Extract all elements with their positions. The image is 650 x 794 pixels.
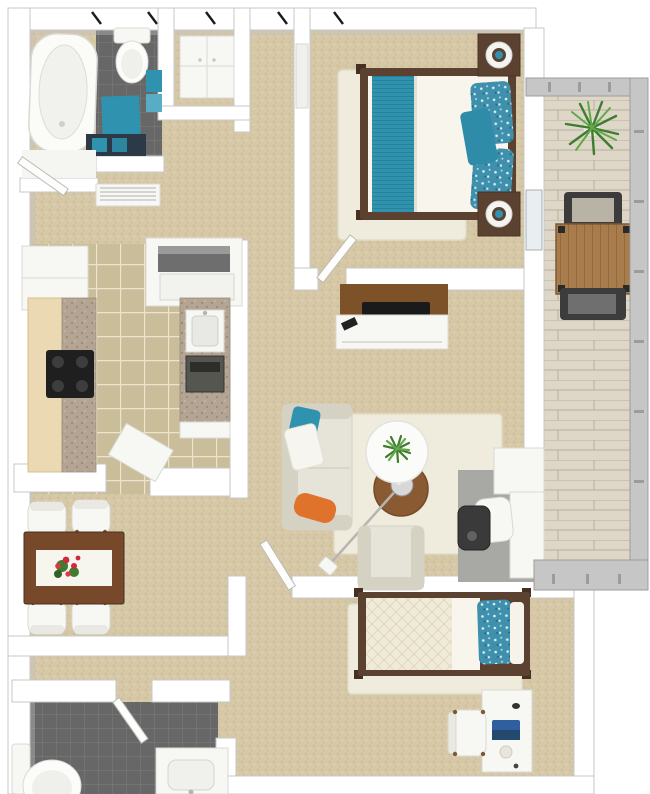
wall-bathroom1-bottom [96,156,164,172]
slatted-wood-table [556,224,632,294]
patio-chair-bottom [560,288,626,320]
teal-floral-pillow-2 [477,599,513,664]
balcony-deck-floor [542,86,632,586]
sofa [282,404,352,530]
right-counter [180,298,230,438]
hall-closet [180,36,234,98]
teal-striped-runner [372,76,414,212]
bedroom2-desk-chair [448,710,486,756]
wall-oven [186,356,224,392]
kitchen-sink [186,310,224,352]
wall-hall-bathroom2-left [12,680,116,702]
dining-chair-bottom-left [28,600,66,634]
tv-console [336,284,448,349]
waste-bin [458,506,490,550]
dining-chair-top-right [72,500,110,534]
wall-hall-stub [228,576,246,656]
teal-towels [146,70,162,112]
railing-right [630,78,648,590]
flat-tv [362,302,430,315]
black-cooktop [46,350,94,398]
wall-bedroom2-right [574,590,594,794]
round-white-coffee-table [366,421,428,483]
patio-chair-top [564,192,622,228]
nightstand-top [478,34,520,76]
quilted-mattress [366,598,452,670]
closed-door-hall-closet [296,44,308,108]
bedroom2-desk [482,690,532,772]
dining-chair-top-left [28,502,66,536]
balcony-door-bedroom-glass [526,190,542,250]
room-dining [24,500,124,634]
wall-hall-bathroom2-right [152,680,230,702]
railing-bottom [534,560,648,590]
nightstand-bottom [478,192,520,236]
toilet [114,28,150,83]
armchair [358,526,424,590]
mouse [512,703,520,709]
white-pillow-edge [510,602,524,664]
vanity-sink-2 [156,748,228,794]
dining-table [24,532,124,604]
wall-bottom-exterior [228,776,594,794]
dining-chair-bottom-right [72,600,110,634]
radiator [96,184,160,206]
floorplan-image [0,0,650,794]
left-counter [28,298,96,472]
wall-shadow [30,30,536,35]
cup [500,746,512,758]
wall-closet-bottom [158,106,250,120]
twin-bed [354,588,531,679]
desk-top [494,448,544,494]
wall-kitchen-bottom-right [150,468,230,496]
floorplan-canvas [0,0,650,794]
wall-left-exterior [8,8,30,794]
wall-dining-hall [8,636,228,656]
wall-master-bedroom-bottom-left [294,268,318,290]
stacked-washer-dryer [146,238,242,306]
counter-end-cabinet [180,422,230,438]
white-dresser [180,36,234,98]
